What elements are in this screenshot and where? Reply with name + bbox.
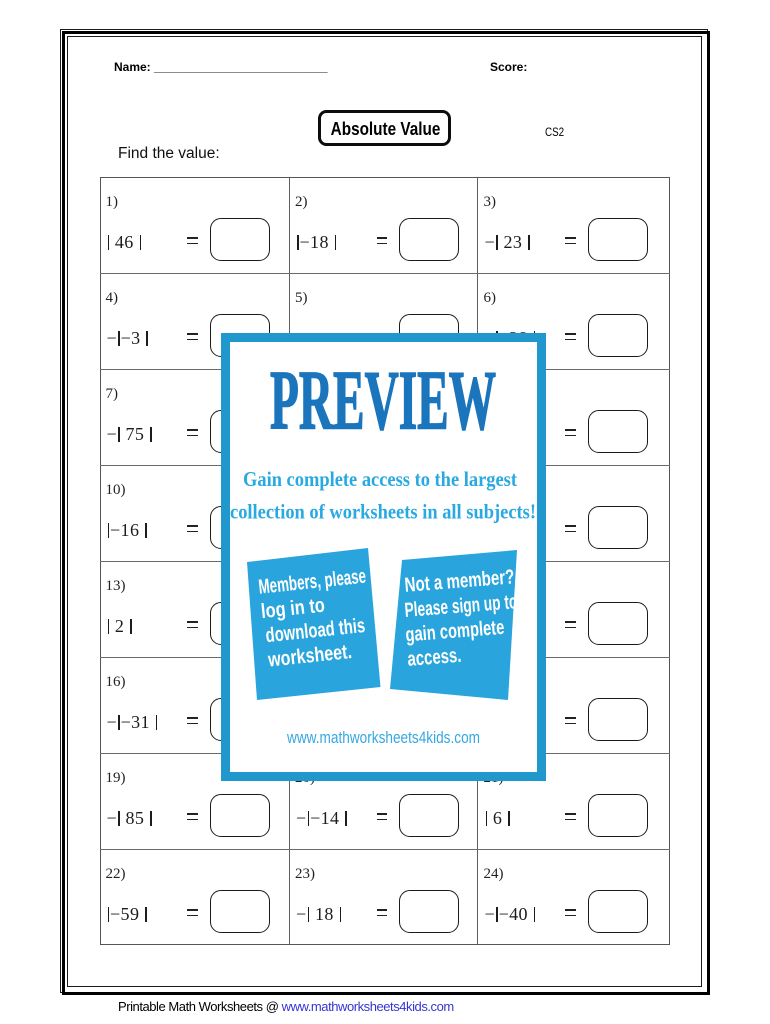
svg-text:Gain complete access to the la: Gain complete access to the largest [243, 467, 517, 491]
svg-text:access.: access. [407, 644, 463, 671]
svg-text:PREVIEW: PREVIEW [270, 354, 496, 448]
svg-text:www.mathworksheets4kids.com: www.mathworksheets4kids.com [286, 728, 480, 747]
svg-text:collection of worksheets in al: collection of worksheets in all subjects… [230, 500, 536, 524]
